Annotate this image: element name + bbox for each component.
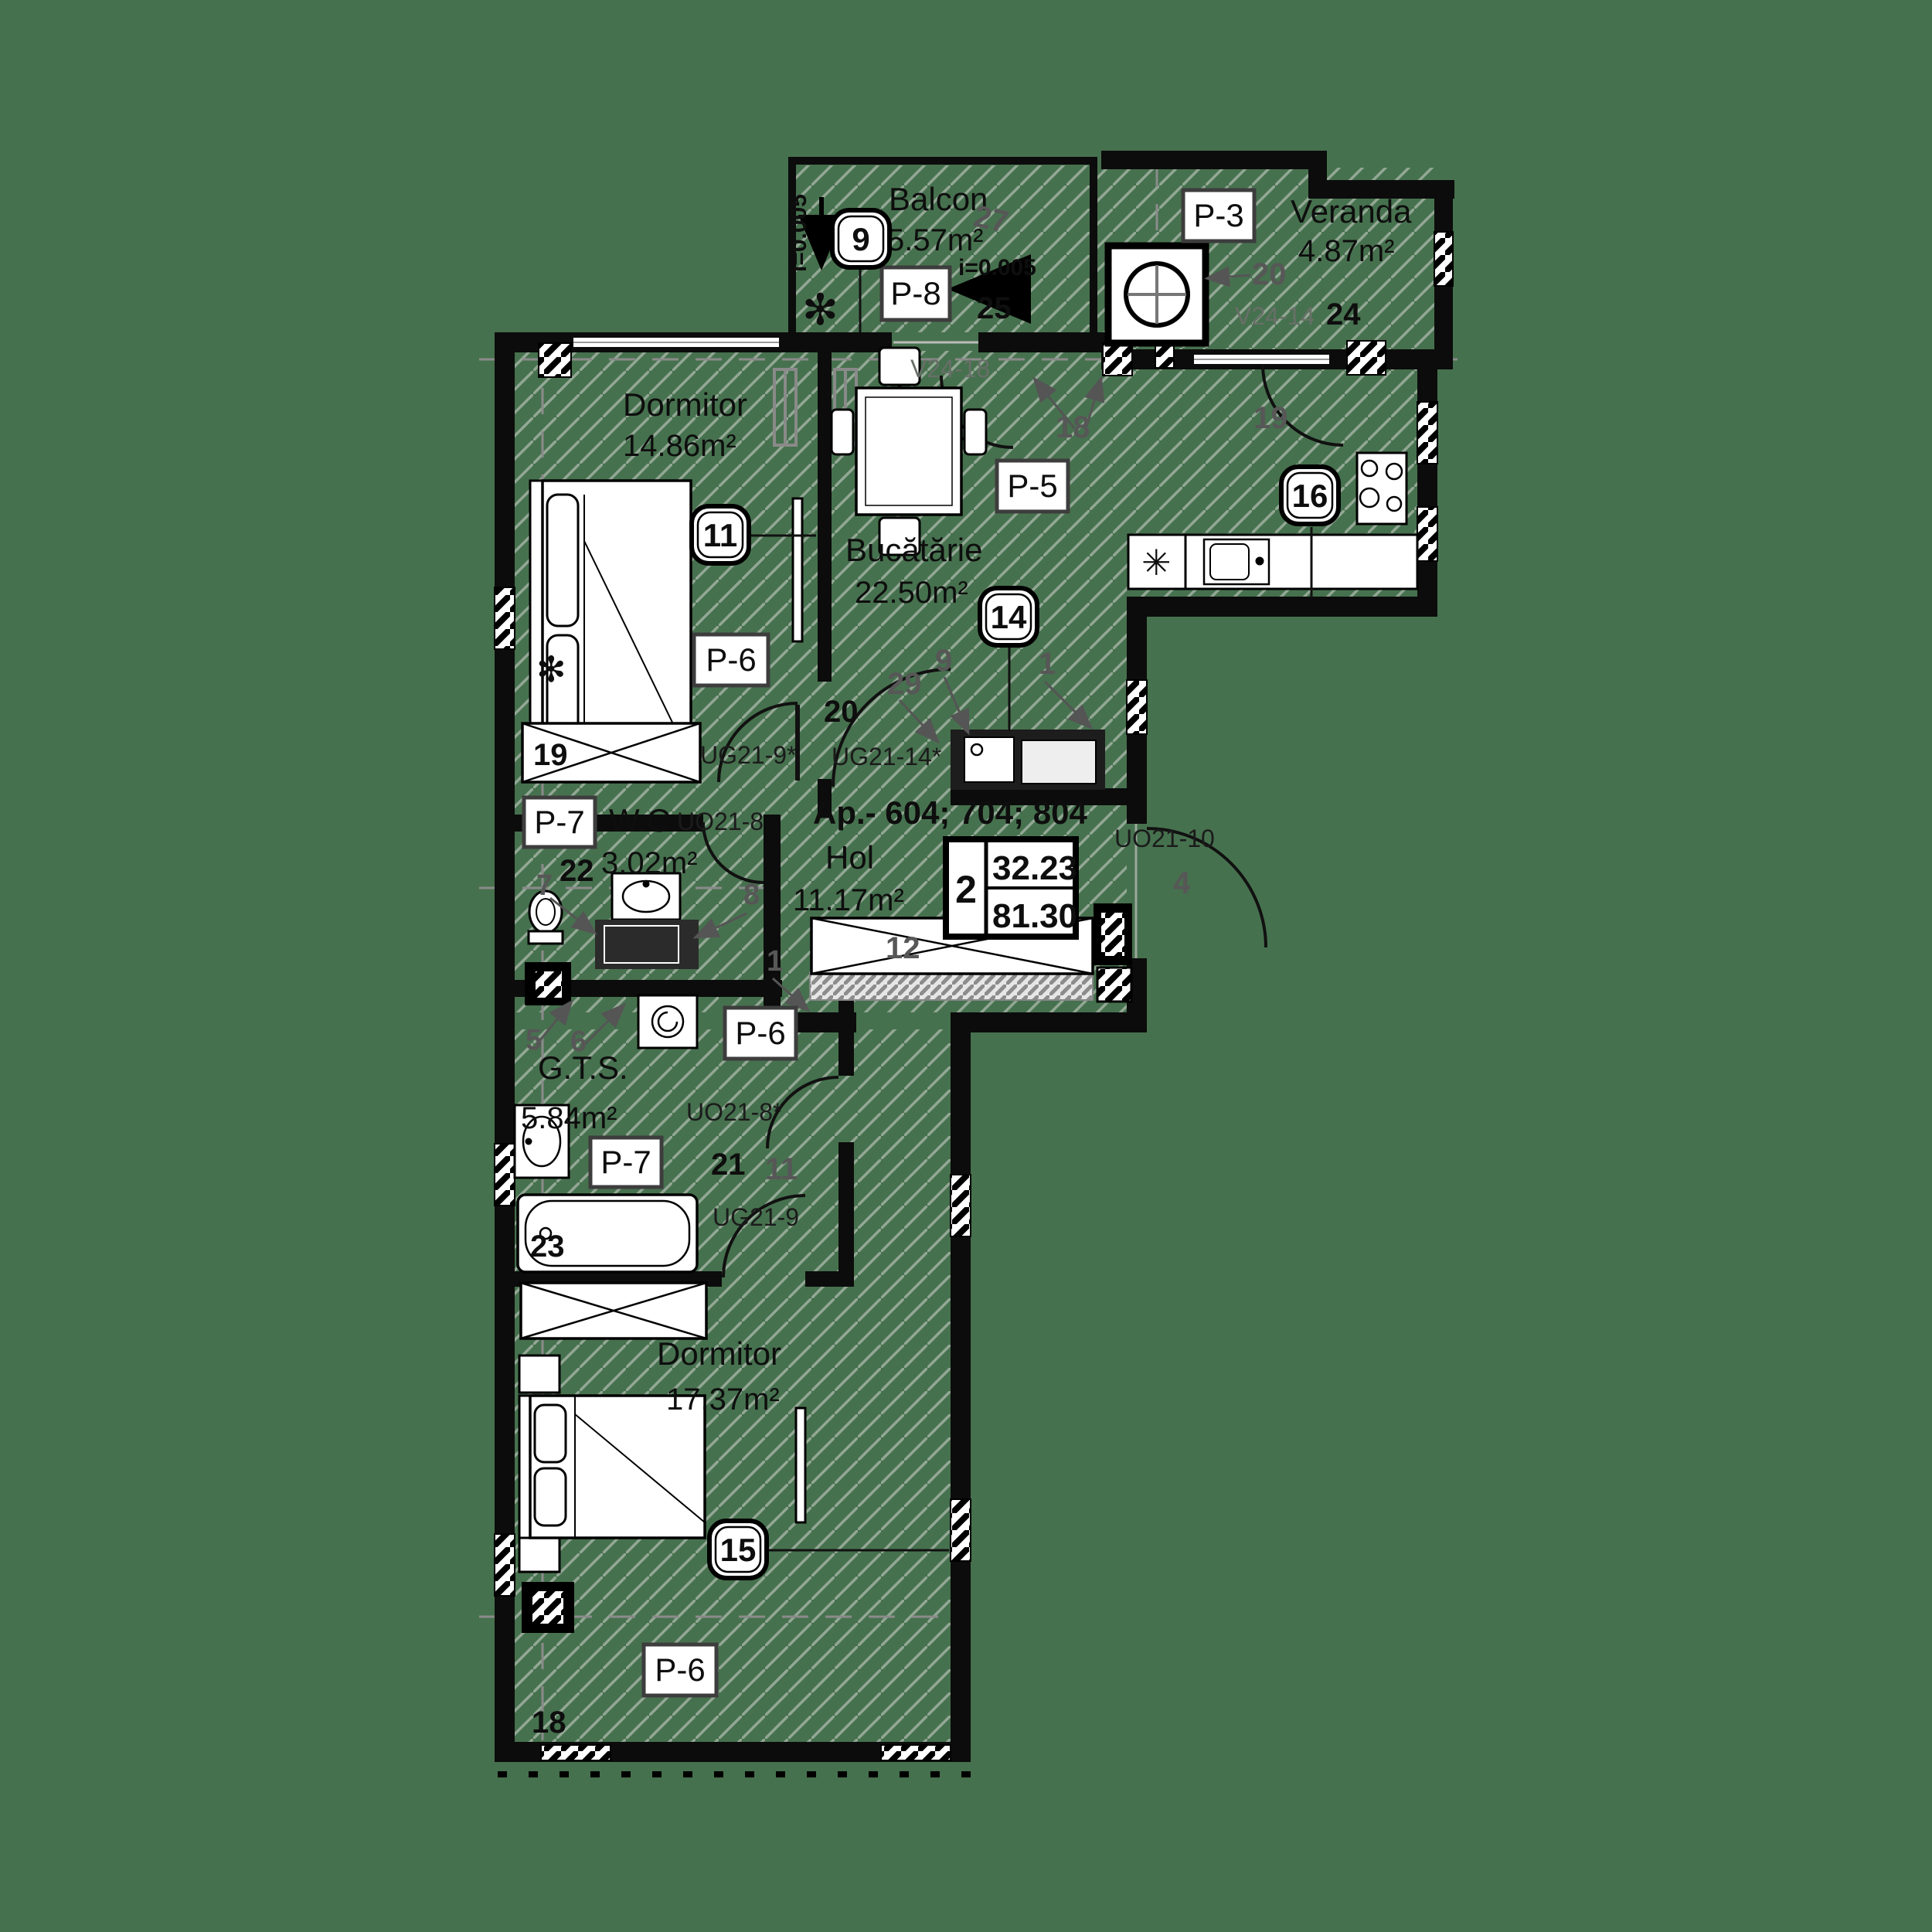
svg-text:9: 9 — [852, 221, 869, 257]
dim-label: 27 — [971, 199, 1012, 240]
badge-16: 16 — [1281, 467, 1338, 524]
room-name-dormitor2: Dormitor — [657, 1335, 781, 1372]
dim-label: 1 — [1039, 647, 1056, 681]
svg-text:P-6: P-6 — [655, 1651, 705, 1688]
dim-label: 4 — [1173, 866, 1191, 900]
tag-p3: P-3 — [1183, 190, 1254, 241]
fridge-star-icon: ✳ — [1141, 543, 1172, 583]
svg-text:P-6: P-6 — [706, 641, 756, 678]
room-name-wc: W.C. — [609, 802, 679, 838]
area-table: 2 32.23 81.30 — [946, 839, 1077, 937]
vent-shaft-icon — [1103, 343, 1132, 376]
kitchen-ext-counter-icon — [1128, 535, 1417, 589]
vent-shaft-icon — [539, 343, 571, 377]
dim-label: 18 — [532, 1706, 566, 1740]
room-area-veranda: 4.87m² — [1298, 234, 1395, 268]
dim-label: 8 — [743, 879, 760, 911]
room-area-dormitor1: 14.86m² — [623, 429, 736, 463]
room-area-wc: 3.02m² — [601, 846, 698, 880]
room-area-balcon: 5.57m² — [887, 223, 984, 257]
room-area-dormitor2: 17.37m² — [666, 1383, 780, 1417]
washing-machine-icon — [638, 995, 697, 1048]
room-area-gts: 5.84m² — [521, 1101, 617, 1135]
window-code: V24-18 — [910, 355, 990, 383]
floor-plan-page: Balcon 5.57m² i=0.005 i=0.005 27 25 V24-… — [0, 0, 1932, 1932]
stove-icon — [1357, 453, 1406, 524]
dim-label: 5 — [526, 1024, 542, 1056]
bath-label: 23 — [530, 1230, 565, 1264]
slope-label: i=0.005 — [958, 255, 1036, 281]
dim-label: 9 — [935, 644, 952, 678]
plant-icon: ✻ — [536, 649, 566, 689]
dim-label: 24 — [1326, 298, 1361, 332]
dim-label: 21 — [711, 1148, 746, 1182]
svg-text:P-6: P-6 — [735, 1015, 785, 1051]
dim-label: 18 — [1056, 410, 1090, 444]
vent-shaft-icon — [1347, 341, 1386, 375]
tag-p7-gts: P-7 — [590, 1138, 662, 1187]
dim-label: 25 — [977, 291, 1012, 325]
badge-11: 11 — [692, 506, 749, 563]
dim-label: 20 — [1252, 257, 1287, 291]
floor-plan-canvas: Balcon 5.57m² i=0.005 i=0.005 27 25 V24-… — [0, 0, 1932, 1932]
wardrobe-label: 12 — [886, 931, 920, 965]
table-rooms-count: 2 — [955, 868, 977, 911]
tag-p5: P-5 — [997, 461, 1068, 512]
room-name-bucatarie: Bucătărie — [845, 532, 982, 568]
table-total-area: 81.30 — [992, 897, 1077, 935]
svg-text:14: 14 — [991, 599, 1027, 635]
door-code: UO21-8* — [686, 1098, 783, 1126]
badge-14: 14 — [980, 588, 1037, 645]
tag-p6-corridor: P-6 — [725, 1008, 796, 1059]
dim-label: 7 — [536, 869, 553, 902]
svg-text:P-7: P-7 — [534, 804, 584, 840]
wardrobe-icon — [521, 1283, 706, 1338]
table-living-area: 32.23 — [992, 849, 1077, 887]
washing-machine-icon — [1108, 246, 1206, 343]
svg-text:16: 16 — [1292, 478, 1328, 514]
svg-text:11: 11 — [703, 517, 737, 553]
door-code: UG21-14* — [832, 743, 941, 770]
svg-text:P-3: P-3 — [1193, 197, 1243, 233]
tag-p7-wc: P-7 — [524, 798, 595, 847]
vanity-icon — [595, 920, 699, 969]
door-code: UO21-10 — [1114, 825, 1215, 852]
badge-15: 15 — [709, 1521, 767, 1578]
kitchen-counter-icon — [951, 730, 1105, 790]
dim-label: 1 — [767, 945, 783, 978]
dim-label: 29 — [887, 667, 922, 701]
svg-text:P-7: P-7 — [600, 1144, 651, 1180]
svg-text:P-8: P-8 — [890, 275, 940, 311]
slope-label: i=0.005 — [786, 194, 811, 272]
dim-label: 19 — [1253, 401, 1288, 435]
sink-icon — [612, 873, 680, 920]
tag-p8: P-8 — [882, 267, 950, 320]
room-name-hol: Hol — [825, 839, 874, 876]
door-code: UG21-9 — [713, 1203, 799, 1231]
badge-9: 9 — [832, 210, 889, 267]
door-code: UG21-9* — [700, 741, 797, 769]
svg-text:15: 15 — [720, 1532, 757, 1568]
room-name-balcon: Balcon — [889, 181, 988, 217]
entrance-mat — [810, 972, 1093, 1000]
tag-p6-dormitor1: P-6 — [694, 634, 768, 685]
apartments-label: Ap.- 604; 704; 804 — [813, 794, 1087, 831]
tv-icon — [793, 498, 802, 641]
wardrobe-label: 19 — [533, 738, 568, 772]
room-name-dormitor1: Dormitor — [623, 386, 747, 423]
tag-p6-dormitor2: P-6 — [644, 1645, 716, 1696]
dim-label: 22 — [560, 854, 594, 888]
window-code: V24-14 — [1235, 302, 1315, 330]
dim-label: 11 — [765, 1152, 798, 1186]
svg-text:P-5: P-5 — [1007, 468, 1057, 504]
fan-icon: ✻ — [802, 285, 838, 334]
dim-label: 20 — [824, 695, 859, 729]
door-code: UO21-8 — [677, 808, 764, 835]
room-area-hol: 11.17m² — [793, 883, 904, 917]
vent-shaft-icon — [1155, 345, 1174, 368]
room-name-veranda: Veranda — [1291, 193, 1412, 230]
room-area-bucatarie: 22.50m² — [855, 576, 968, 610]
tv-icon — [796, 1408, 805, 1522]
dim-label: 6 — [570, 1026, 587, 1058]
